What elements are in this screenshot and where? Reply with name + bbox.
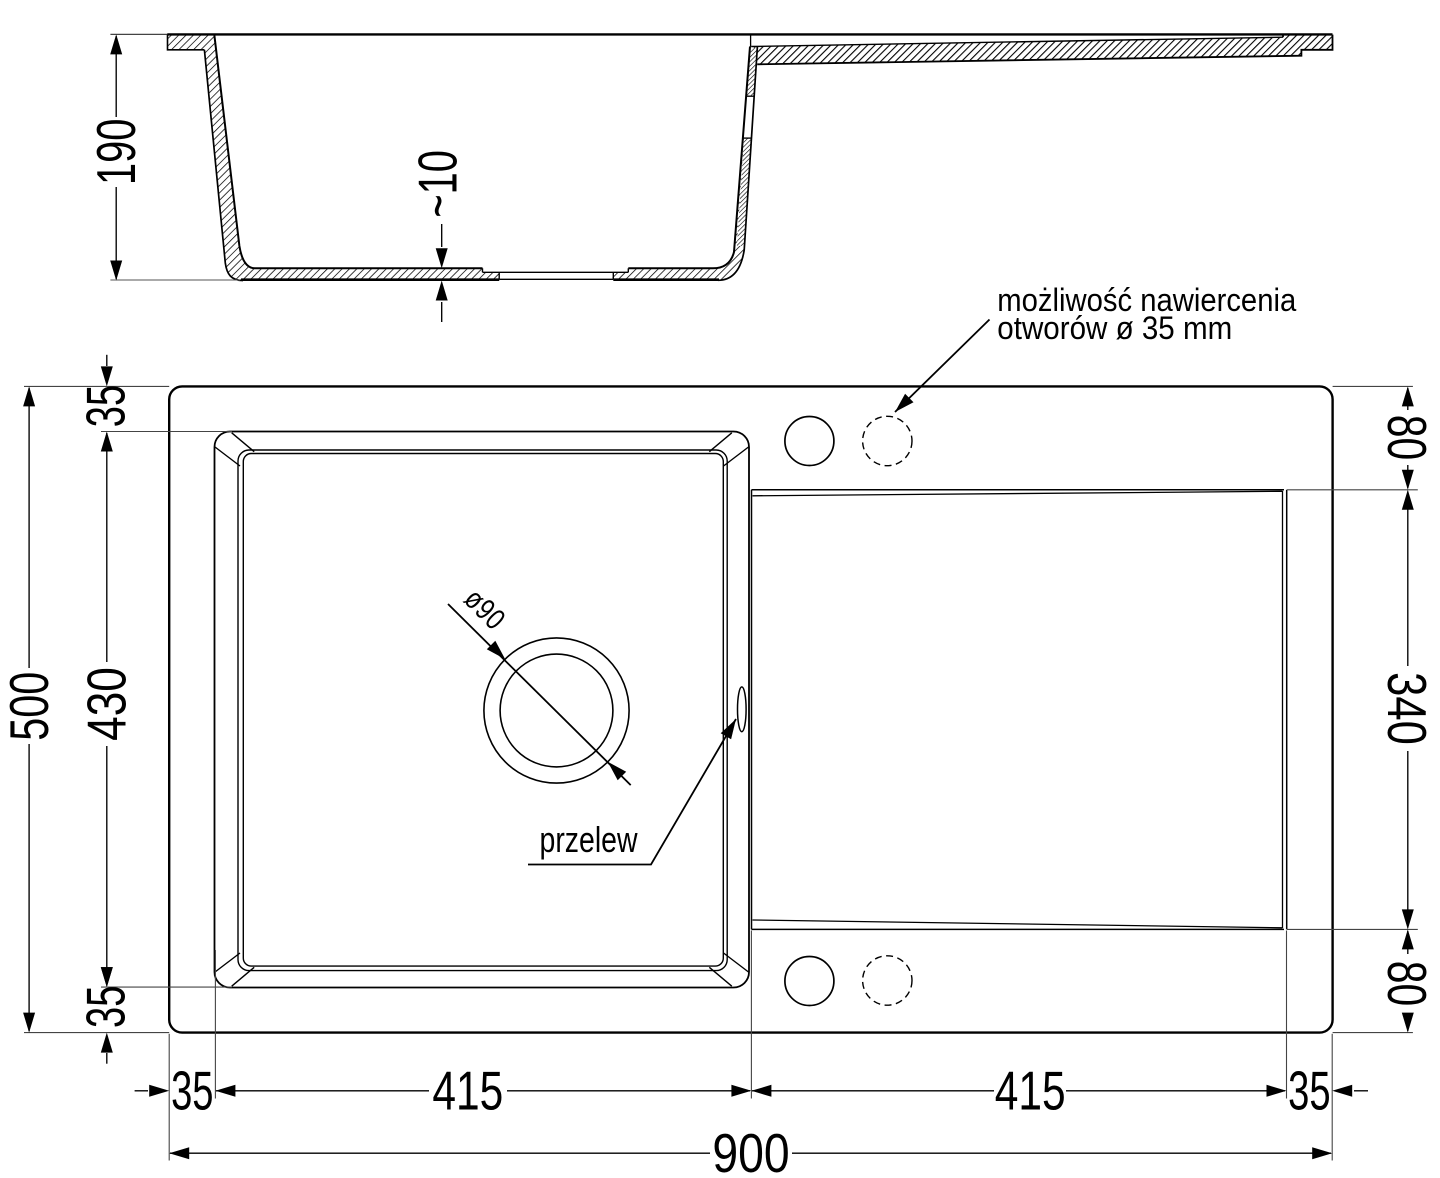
svg-text:430: 430 [76,667,138,741]
svg-text:otworów ø 35 mm: otworów ø 35 mm [997,310,1232,346]
svg-text:80: 80 [1375,415,1436,460]
svg-text:415: 415 [995,1062,1066,1122]
svg-text:900: 900 [712,1122,789,1178]
svg-text:190: 190 [87,119,148,185]
svg-text:340: 340 [1376,672,1437,745]
svg-text:500: 500 [0,672,60,741]
svg-text:35: 35 [74,385,135,427]
svg-text:80: 80 [1375,961,1436,1006]
svg-text:35: 35 [75,986,136,1028]
svg-text:przelew: przelew [540,819,639,860]
svg-text:35: 35 [171,1060,213,1121]
svg-text:35: 35 [1288,1060,1330,1121]
svg-text:415: 415 [432,1062,503,1122]
svg-text:~10: ~10 [409,150,470,217]
